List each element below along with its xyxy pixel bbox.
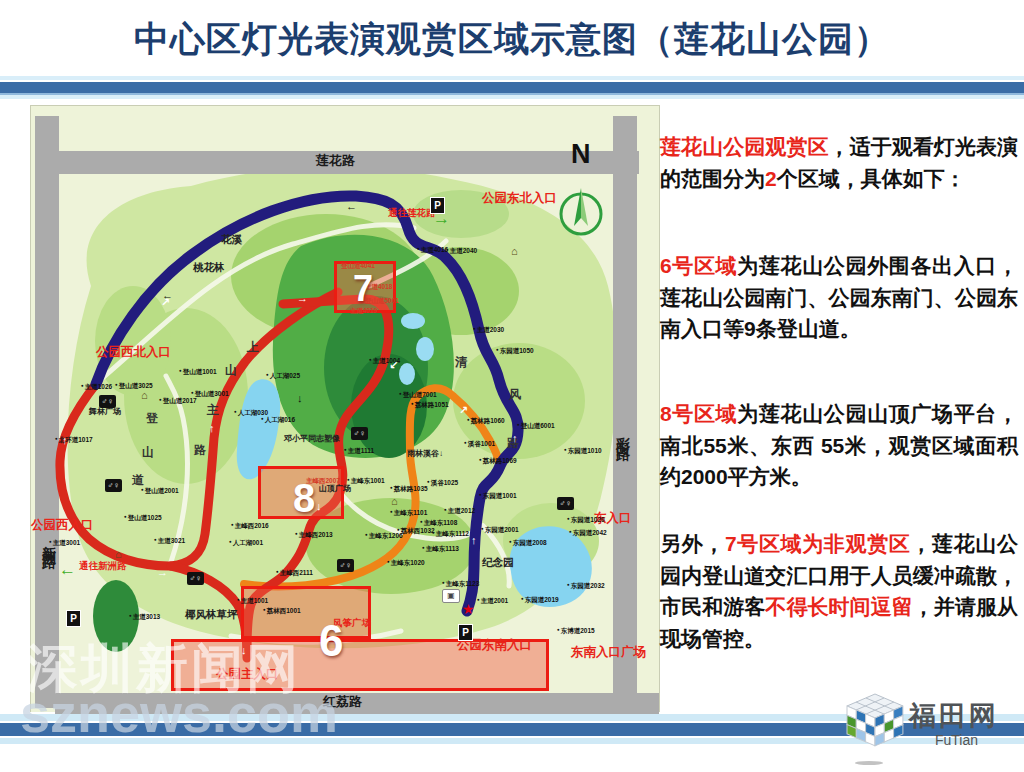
logo-title: 福田网 xyxy=(909,698,999,734)
map-label: 主道3001 xyxy=(49,539,80,546)
zone-6-number: 6 xyxy=(319,616,343,666)
green-arrow-icon: → xyxy=(433,210,450,229)
map-label: 主道2040 xyxy=(446,247,477,254)
path-arrow-icon: ↙ xyxy=(389,359,398,371)
map-label: 登山道6001 xyxy=(517,422,555,429)
map-label: 登 xyxy=(146,412,158,425)
direction-label: 通往莲花路 xyxy=(388,208,436,218)
path-arrow-icon: ↓ xyxy=(316,500,322,512)
map-label: 主道2001 xyxy=(477,597,508,604)
map-label: 东园道2001 xyxy=(481,526,519,533)
entrance-label: 东南入口广场 xyxy=(571,646,646,660)
path-arrow-icon: → xyxy=(297,292,308,304)
slide: 中心区灯光表演观赏区域示意图（莲花山公园） xyxy=(0,0,1024,772)
map-label: 荔林路1035 xyxy=(390,485,428,492)
north-label: N xyxy=(571,140,591,170)
info-panel: 莲花山公园观赏区，适于观看灯光表演的范围分为2个区域，具体如下：6号区域为莲花山… xyxy=(660,0,1020,712)
map-label: 道 xyxy=(132,474,144,487)
map-label: 东园道1010 xyxy=(564,447,602,454)
pavilion-icon: ⌂ xyxy=(115,548,122,560)
path-arrow-icon: ↑ xyxy=(471,534,477,546)
pavilion-icon: ⌂ xyxy=(141,389,148,401)
map-label: 花溪 xyxy=(221,234,242,246)
map-label: 主峰东1206 xyxy=(365,532,403,539)
map-label: 北环道1017 xyxy=(55,436,93,443)
map-label: 东园道2042 xyxy=(569,529,607,536)
map-label: 山 xyxy=(142,446,154,459)
logo-subtitle: FuTian xyxy=(935,732,978,748)
map-label: 雨林溪谷↓ xyxy=(407,450,443,459)
map-label: 主道1026 xyxy=(81,383,112,390)
map-label: 荔林路1060 xyxy=(467,417,505,424)
map-label: 山顶广场 xyxy=(319,485,351,494)
arrow-icon: ↓ xyxy=(297,392,303,404)
map-label: 主道2012 xyxy=(444,507,475,514)
map-label: 纪念园 xyxy=(482,557,514,569)
toilet-icon: ♂♀ xyxy=(105,479,122,492)
park-map: 7 8 6 莲花路红荔路新洲路彩田路N公园东北入口公园西北入口公园西入口东入口东… xyxy=(30,105,660,715)
zone-8-number: 8 xyxy=(293,476,315,521)
info-paragraph: 6号区域为莲花山公园外围各出入口，莲花山公园南门、公园东南门、公园东南入口等9条… xyxy=(660,250,1018,345)
watermark-url: sznews.com xyxy=(20,682,338,744)
map-label: 清 xyxy=(455,356,467,369)
map-label: 东园道1020 xyxy=(567,516,605,523)
toilet-icon: ♂♀ xyxy=(351,427,368,440)
map-label: 东博道2015 xyxy=(557,627,595,634)
parking-icon: P xyxy=(67,611,80,626)
road-label-lianhua: 莲花路 xyxy=(316,154,355,168)
map-label: 主道3021 xyxy=(154,537,185,544)
map-label: 登山道1001 xyxy=(179,368,217,375)
map-label: 人工湖001 xyxy=(229,539,263,546)
arrow-icon: ← xyxy=(346,200,357,212)
toilet-icon: ♂♀ xyxy=(557,497,574,510)
path-arrow-icon: ↑ xyxy=(62,434,68,446)
direction-label: 通往新洲路 xyxy=(79,561,127,571)
map-label: 邓小平同志塑像 xyxy=(284,435,340,444)
map-label: 主峰西2016 xyxy=(231,522,269,529)
map-label: 荔林路1051 xyxy=(411,401,449,408)
map-label: 登山道2001 xyxy=(141,487,179,494)
path-arrow-icon: ↑ xyxy=(512,432,518,444)
star-icon: ★ xyxy=(462,602,475,617)
map-label: 荔林路1069 xyxy=(479,457,517,464)
map-label: 人工湖016 xyxy=(261,416,295,423)
map-label: 东园道2032 xyxy=(567,582,605,589)
zone-7-number: 7 xyxy=(353,268,373,310)
cube-logo-icon xyxy=(843,692,907,766)
map-label: 椰风林草坪 xyxy=(185,609,238,621)
pavilion-icon: ⌂ xyxy=(511,245,518,257)
green-arrow-icon: ← xyxy=(59,561,76,580)
map-label: 桃花林 xyxy=(193,262,225,274)
entrance-label: 公园东北入口 xyxy=(482,192,557,206)
map-label: 东园道1050 xyxy=(496,347,534,354)
map-label: 风 xyxy=(509,388,521,401)
path-arrow-icon: ↗ xyxy=(459,404,468,416)
map-label: 主峰东1113 xyxy=(422,545,459,552)
parking-icon: P xyxy=(459,625,472,640)
map-label: 东园道1001 xyxy=(479,492,517,499)
toilet-icon: ♂♀ xyxy=(99,395,116,408)
road-label-caitian: 彩田路 xyxy=(615,426,630,441)
futian-logo: 福田网 FuTian xyxy=(843,686,1023,766)
path-arrow-icon: → xyxy=(157,566,168,578)
map-label: 登山道1025 xyxy=(124,514,162,521)
map-label: 溪谷1025 xyxy=(427,479,458,486)
map-label: 人工湖025 xyxy=(266,372,300,379)
map-label: 主峰东1101 xyxy=(390,509,427,516)
map-label: 主道1111 xyxy=(344,447,374,454)
map-label: 上 xyxy=(247,341,259,354)
map-label: 东园道2008 xyxy=(509,539,547,546)
map-label: 舞林广场 xyxy=(89,408,121,417)
map-label: 主峰东1001 xyxy=(347,477,385,484)
map-label: 主峰东1108 xyxy=(420,519,457,526)
map-label: 主道2030 xyxy=(473,326,504,333)
map-label: 东园道2019 xyxy=(521,596,559,603)
entrance-label: 公园西入口 xyxy=(31,519,94,533)
info-paragraph: 莲花山公园观赏区，适于观看灯光表演的范围分为2个区域，具体如下： xyxy=(660,131,1018,194)
map-label: 登山道7001 xyxy=(399,391,437,398)
path-arrow-icon: ↑ xyxy=(209,422,215,434)
map-label: 主道3013 xyxy=(129,613,160,620)
map-label: 路 xyxy=(194,444,206,457)
map-label: 登山道2017 xyxy=(159,397,197,404)
map-label: 主道1001 xyxy=(237,597,268,604)
map-label: 主峰东1020 xyxy=(387,559,425,566)
map-label: 主道4016 xyxy=(417,246,448,253)
entrance-label: 公园东南入口 xyxy=(457,639,532,653)
info-paragraph: 另外，7号区域为非观赏区，莲花山公园内登山道交汇口用于人员缓冲疏散，市民和游客不… xyxy=(660,528,1018,654)
map-label: 主峰西2013 xyxy=(295,531,333,538)
info-paragraph: 8号区域为莲花山公园山顶广场平台，南北55米、东西 55米，观赏区域面积约200… xyxy=(660,398,1018,493)
map-label: 溪谷1001 xyxy=(464,440,495,447)
bus-icon: ▣ xyxy=(442,589,460,603)
arrow-icon: ← xyxy=(162,289,173,301)
entrance-label: 公园西北入口 xyxy=(96,346,171,360)
pavilion-icon: ⌂ xyxy=(391,495,398,507)
map-label: 主 xyxy=(207,404,219,417)
map-labels-layer: 莲花路红荔路新洲路彩田路N公园东北入口公园西北入口公园西入口东入口东南入口广场公… xyxy=(31,106,659,714)
map-label: 主峰东1112 xyxy=(432,530,469,537)
map-label: 荔林西1001 xyxy=(263,607,301,614)
map-label: 山 xyxy=(225,364,237,377)
toilet-icon: ♂♀ xyxy=(187,572,204,585)
toilet-icon: ♂♀ xyxy=(337,559,354,572)
map-label: 主峰西2111 xyxy=(276,569,313,576)
map-label: 主峰东1123 xyxy=(442,580,479,587)
